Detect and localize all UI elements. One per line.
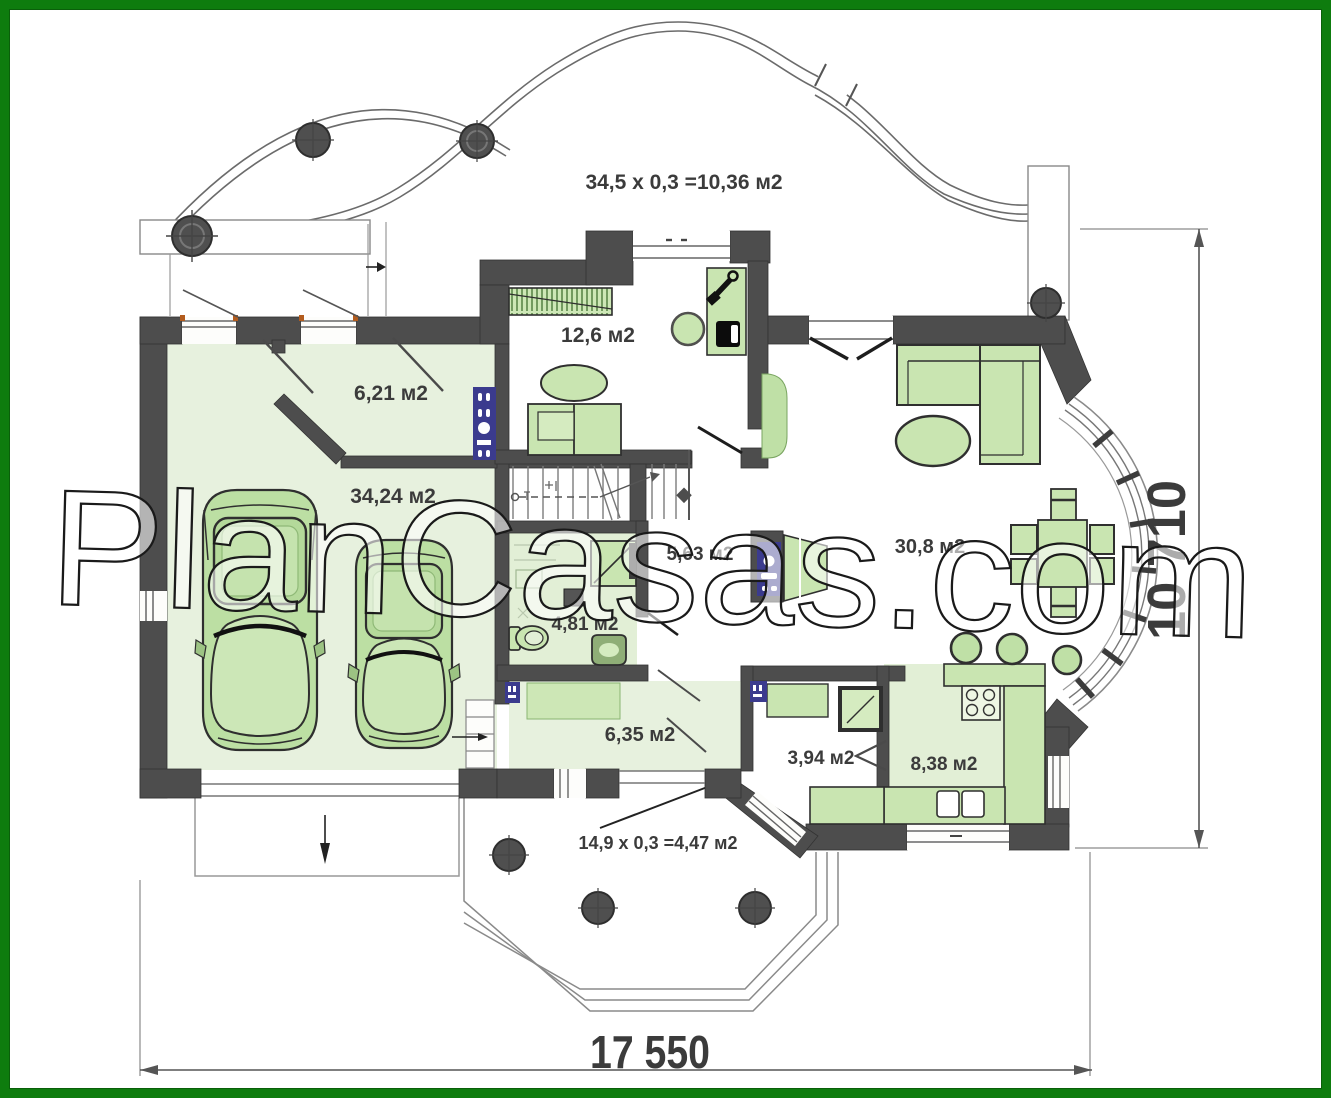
svg-text:6,21 м2: 6,21 м2 [354, 382, 428, 405]
svg-text:PlanCasas.com: PlanCasas.com [47, 455, 1257, 673]
svg-text:14,9 x 0,3 =4,47 м2: 14,9 x 0,3 =4,47 м2 [579, 833, 738, 853]
svg-text:3,94 м2: 3,94 м2 [788, 748, 855, 769]
svg-text:34,5 x 0,3 =10,36 м2: 34,5 x 0,3 =10,36 м2 [585, 171, 782, 194]
svg-text:17 550: 17 550 [590, 1026, 710, 1078]
svg-text:6,35 м2: 6,35 м2 [605, 724, 675, 746]
svg-text:12,6 м2: 12,6 м2 [561, 324, 635, 347]
svg-text:8,38 м2: 8,38 м2 [911, 754, 978, 775]
